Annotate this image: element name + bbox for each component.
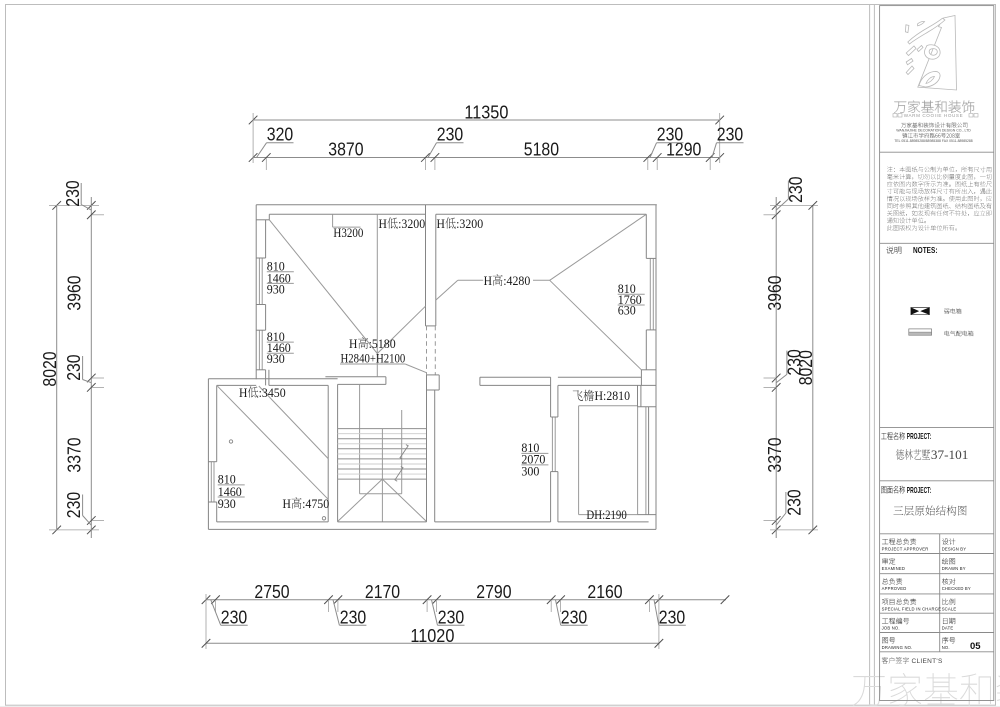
svg-text:3960: 3960 (64, 275, 85, 310)
svg-text:2750: 2750 (254, 581, 289, 602)
svg-text:DATE: DATE (942, 626, 954, 631)
svg-text:230: 230 (62, 180, 83, 206)
svg-text:PROJECT APPROVER: PROJECT APPROVER (882, 546, 929, 551)
svg-text:WARM COOIIE HOUSE: WARM COOIIE HOUSE (904, 113, 964, 118)
svg-text:H2840+H2100: H2840+H2100 (341, 351, 406, 365)
svg-text:230: 230 (63, 492, 84, 518)
svg-text:3870: 3870 (328, 139, 363, 160)
svg-text:930: 930 (218, 496, 236, 511)
svg-text:3370: 3370 (764, 437, 785, 472)
svg-text:230: 230 (659, 606, 685, 627)
svg-text:TEL 0511-88985288/88985388 F: TEL 0511-88985288/88985388 FAX 0511-8898… (894, 139, 972, 143)
svg-text:DH:2190: DH:2190 (586, 508, 626, 522)
svg-text:H: H (437, 217, 445, 231)
svg-text:APPROVED: APPROVED (882, 586, 907, 591)
svg-text:8020: 8020 (39, 351, 60, 386)
svg-text:H: H (283, 497, 291, 511)
svg-text::3450: :3450 (259, 386, 286, 400)
svg-text:CLIENT'S: CLIENT'S (912, 658, 943, 665)
svg-text::4750: :4750 (302, 497, 329, 511)
svg-text:H: H (349, 337, 357, 351)
svg-text:DESIGN BY: DESIGN BY (942, 546, 967, 551)
svg-text:PROJECT:: PROJECT: (907, 486, 932, 495)
svg-text:230: 230 (561, 606, 587, 627)
svg-text:11350: 11350 (464, 101, 508, 122)
svg-text:3960: 3960 (764, 275, 785, 310)
svg-text:H: H (379, 217, 387, 231)
svg-text:230: 230 (221, 606, 247, 627)
svg-text:05: 05 (970, 641, 981, 652)
svg-text:CHECKED BY: CHECKED BY (942, 586, 971, 591)
svg-text:11020: 11020 (410, 625, 454, 646)
svg-text:SPECIAL FIELD IN CHARGE: SPECIAL FIELD IN CHARGE (882, 606, 942, 611)
svg-text::4280: :4280 (503, 274, 530, 288)
svg-text:2160: 2160 (587, 581, 622, 602)
svg-text:2170: 2170 (365, 581, 400, 602)
svg-text:NO.: NO. (942, 645, 950, 650)
svg-text:JOB NO.: JOB NO. (882, 626, 900, 631)
svg-text:3370: 3370 (64, 437, 85, 472)
svg-text::5180: :5180 (369, 337, 396, 351)
svg-text:320: 320 (267, 124, 293, 145)
svg-text::3200: :3200 (398, 217, 425, 231)
svg-text:H: H (239, 386, 247, 400)
svg-text:300: 300 (521, 463, 539, 478)
svg-text:2790: 2790 (476, 581, 511, 602)
svg-text:230: 230 (657, 124, 683, 145)
svg-text:SCALE: SCALE (942, 606, 957, 611)
svg-text:230: 230 (63, 354, 84, 380)
svg-text:H3200: H3200 (333, 226, 363, 240)
svg-text:H:2810: H:2810 (595, 389, 631, 403)
svg-text:230: 230 (340, 606, 366, 627)
svg-text:5180: 5180 (524, 139, 559, 160)
svg-text:230: 230 (438, 606, 464, 627)
svg-text::3200: :3200 (456, 217, 483, 231)
svg-text:230: 230 (717, 124, 743, 145)
svg-text:230: 230 (784, 489, 805, 515)
svg-text:37-101: 37-101 (931, 447, 969, 462)
svg-text:H: H (484, 274, 492, 288)
svg-text:NOTES:: NOTES: (913, 246, 938, 255)
svg-text:DRAWING NO.: DRAWING NO. (882, 645, 913, 650)
svg-text:230: 230 (437, 124, 463, 145)
svg-text:WANJIAJIHE DECORATION DESIGN C: WANJIAJIHE DECORATION DESIGN CO., LTD (896, 128, 971, 132)
svg-text:DRAWN BY: DRAWN BY (942, 566, 966, 571)
svg-text:EXAMINED: EXAMINED (882, 566, 905, 571)
svg-text:PROJECT:: PROJECT: (907, 432, 932, 441)
